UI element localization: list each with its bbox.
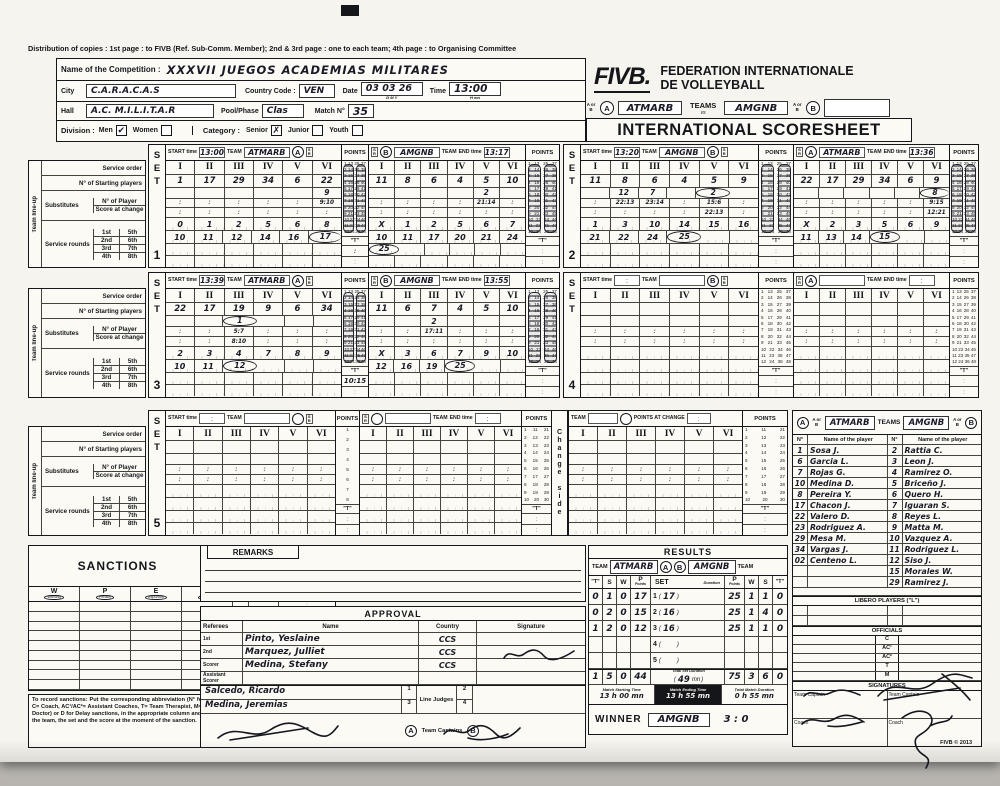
service-round bbox=[225, 385, 254, 396]
service-round bbox=[279, 511, 307, 522]
rotation-header: I bbox=[166, 427, 194, 440]
points-row: 9213345 bbox=[528, 341, 557, 346]
set3-team-b-header: SRBAMGNBTEAMEND time13:55 bbox=[369, 273, 525, 289]
service-round bbox=[670, 244, 700, 255]
points-row: 81828 bbox=[524, 483, 549, 488]
rotation-header: I bbox=[794, 161, 820, 174]
service-round bbox=[581, 385, 611, 396]
service-round bbox=[421, 385, 447, 396]
service-round bbox=[279, 485, 307, 497]
set5-right-header: SRTEAMEND time bbox=[360, 411, 521, 427]
starting-player: 22 bbox=[794, 175, 820, 187]
points-row: 3152739 bbox=[952, 303, 976, 308]
pool-label: Pool/Phase bbox=[221, 108, 259, 115]
starting-player bbox=[685, 441, 714, 453]
service-round bbox=[194, 498, 222, 510]
service-round bbox=[611, 347, 641, 359]
service-round bbox=[166, 385, 195, 396]
service-round bbox=[194, 511, 222, 522]
roster-row: 10Medina D.5Briceño J. bbox=[793, 478, 981, 489]
service-round bbox=[254, 244, 283, 255]
match-duration-value: 0 h 55 mn bbox=[735, 693, 774, 701]
service-round bbox=[820, 385, 846, 396]
starting-player: 29 bbox=[225, 175, 254, 187]
score-at-change bbox=[166, 465, 194, 474]
points-row: 4162840 bbox=[528, 181, 557, 186]
approval-row: 1st Pinto, Yeslaine CCS bbox=[201, 633, 585, 646]
service-round bbox=[369, 373, 395, 384]
substitute bbox=[254, 188, 283, 198]
score-at-change bbox=[656, 465, 685, 474]
points-row: 9213345 bbox=[952, 212, 976, 217]
sr-marker: SR bbox=[306, 147, 313, 157]
approval-title: APPROVAL bbox=[201, 607, 585, 621]
score-at-change bbox=[670, 337, 700, 346]
substitute bbox=[870, 188, 895, 198]
starting-player: 5 bbox=[474, 303, 500, 315]
team-badge: B bbox=[380, 146, 392, 158]
substitute bbox=[166, 188, 195, 198]
starting-player bbox=[569, 441, 598, 453]
fivb-header: FIVB. FEDERATION INTERNATIONALE DE VOLLE… bbox=[586, 58, 980, 142]
service-round: 24 bbox=[639, 231, 668, 243]
captain-a-mark: A bbox=[405, 725, 417, 737]
teams-word: TEAMS bbox=[690, 101, 716, 110]
set1-team-a-grid: START time13:00TEAMATMARBASR IIIIIIIVVVI… bbox=[166, 144, 342, 268]
roster-row: 1Sosa J.2Rattia C. bbox=[793, 445, 981, 456]
rotation-header: III bbox=[627, 427, 656, 440]
score-at-change bbox=[369, 327, 395, 336]
category-youth-label: Youth bbox=[329, 127, 348, 134]
team-badge bbox=[371, 413, 383, 425]
service-round bbox=[495, 511, 521, 522]
round-pair: 2nd6th bbox=[94, 237, 145, 245]
starting-player bbox=[627, 441, 656, 453]
service-round bbox=[627, 485, 656, 497]
service-round bbox=[581, 360, 611, 372]
sr-marker: SR bbox=[371, 276, 378, 286]
scoresheet-title: INTERNATIONAL SCORESHEET bbox=[617, 121, 881, 140]
service-round bbox=[468, 523, 495, 534]
country-header: Country bbox=[419, 621, 477, 632]
service-round bbox=[395, 373, 421, 384]
rotation-header: III bbox=[225, 289, 254, 302]
rotation-header: I bbox=[166, 289, 195, 302]
service-round: 2 bbox=[166, 347, 195, 359]
service-round: 2 bbox=[421, 218, 447, 230]
starting-player: 8 bbox=[611, 175, 641, 187]
substitute bbox=[627, 454, 656, 464]
service-round bbox=[395, 385, 421, 396]
sr-marker: SR bbox=[796, 276, 803, 286]
service-round bbox=[283, 385, 312, 396]
service-round bbox=[474, 373, 500, 384]
score-at-change bbox=[195, 208, 224, 217]
score-at-change bbox=[729, 199, 758, 208]
service-round bbox=[872, 385, 898, 396]
points-row: 4162840 bbox=[344, 309, 366, 314]
team-a-badge: A bbox=[600, 101, 614, 115]
starting-player bbox=[581, 303, 611, 315]
category-junior-label: Junior bbox=[288, 127, 309, 134]
starting-players-label: N° of Starting players bbox=[42, 176, 145, 191]
substitute bbox=[314, 316, 342, 326]
service-round bbox=[729, 360, 758, 372]
starting-player: 6 bbox=[421, 175, 447, 187]
set5-left-points: POINTS 12345678 "T" bbox=[336, 410, 360, 536]
starting-player: 4 bbox=[448, 303, 474, 315]
service-order-label: Service order bbox=[42, 161, 145, 176]
rotation-header: VI bbox=[500, 289, 525, 302]
substitute bbox=[700, 316, 730, 326]
score-at-change bbox=[360, 475, 387, 484]
service-round bbox=[611, 373, 641, 384]
starting-player: 4 bbox=[670, 175, 700, 187]
score-at-change bbox=[421, 208, 447, 217]
service-round bbox=[670, 385, 700, 396]
match-number-value: 35 bbox=[348, 104, 374, 118]
points-row: 31323 bbox=[745, 444, 785, 449]
rotation-header: V bbox=[700, 161, 730, 174]
service-round bbox=[640, 360, 670, 372]
points-row: 11233547 bbox=[761, 354, 791, 359]
service-round bbox=[685, 523, 714, 534]
set1-block: SET1 START time13:00TEAMATMARBASR IIIIII… bbox=[148, 144, 560, 268]
service-round bbox=[414, 511, 441, 522]
service-round: 9 bbox=[313, 347, 341, 359]
substitute bbox=[166, 316, 195, 326]
score-at-change bbox=[369, 208, 395, 217]
points-row: 1132537 bbox=[344, 290, 366, 295]
substitute bbox=[820, 316, 846, 326]
rotation-header: I bbox=[369, 161, 395, 174]
score-at-change bbox=[223, 465, 251, 474]
team-badge: B bbox=[707, 146, 719, 158]
points-row: 12243648 bbox=[761, 230, 791, 235]
score-at-change bbox=[195, 327, 224, 336]
service-round bbox=[569, 523, 598, 534]
team-badge: A bbox=[292, 275, 304, 287]
rotation-header: V bbox=[468, 427, 495, 440]
score-at-change bbox=[898, 327, 924, 336]
service-round bbox=[898, 256, 924, 267]
substitute bbox=[223, 454, 251, 464]
points-row: 2 bbox=[338, 438, 357, 443]
set1-team-b-points: POINTS 113253721426383152739416284051729… bbox=[526, 144, 560, 268]
score-at-change bbox=[448, 199, 474, 208]
substitute bbox=[794, 188, 819, 198]
points-row: 102030 bbox=[524, 498, 549, 503]
service-round bbox=[714, 485, 742, 497]
end-time: 13:55 bbox=[484, 275, 510, 286]
points-row: 3152739 bbox=[952, 174, 976, 179]
starting-player: 34 bbox=[313, 303, 341, 315]
service-round: 4 bbox=[225, 347, 254, 359]
score-at-change bbox=[283, 208, 312, 217]
points-row: 7193143 bbox=[952, 199, 976, 204]
service-round bbox=[360, 498, 387, 510]
time-value: 13:00 bbox=[449, 82, 501, 96]
service-round bbox=[627, 511, 656, 522]
substitute bbox=[794, 316, 820, 326]
points-row: 2142638 bbox=[952, 296, 976, 301]
team-a-name: ATMARB bbox=[618, 101, 682, 115]
service-round bbox=[254, 373, 283, 384]
remarks-panel: REMARKS bbox=[200, 545, 586, 602]
change-side-column: Change side bbox=[552, 410, 568, 536]
roster-captain-a-signature bbox=[800, 686, 864, 700]
service-round: 14 bbox=[844, 231, 869, 243]
service-round bbox=[872, 256, 898, 267]
service-round bbox=[369, 256, 395, 267]
service-round bbox=[251, 498, 279, 510]
rotation-header: V bbox=[474, 289, 500, 302]
rotation-header: III bbox=[846, 289, 872, 302]
substitute bbox=[846, 316, 872, 326]
score-at-change: 22:13 bbox=[700, 208, 730, 217]
service-round bbox=[313, 256, 341, 267]
score-at-change bbox=[495, 465, 521, 474]
points-row: 6183042 bbox=[761, 322, 791, 327]
score-at-change bbox=[656, 475, 685, 484]
service-round: 0 bbox=[166, 218, 195, 230]
division-women-checkbox bbox=[161, 125, 172, 136]
service-round bbox=[627, 498, 656, 510]
points-row: 71727 bbox=[745, 475, 785, 480]
score-at-change bbox=[820, 327, 846, 336]
score-at-change bbox=[714, 475, 742, 484]
service-round: 6 bbox=[421, 347, 447, 359]
round-pair: 3rd7th bbox=[94, 245, 145, 253]
service-round bbox=[308, 485, 335, 497]
category-youth-checkbox bbox=[352, 125, 363, 136]
score-at-change bbox=[166, 199, 195, 208]
sanction-column-header: WWarning bbox=[29, 587, 80, 601]
service-round bbox=[495, 498, 521, 510]
rotation-header: IV bbox=[872, 161, 898, 174]
service-round: 12 bbox=[369, 360, 394, 372]
score-at-change bbox=[448, 337, 474, 346]
starting-player: 5 bbox=[474, 175, 500, 187]
service-round bbox=[474, 256, 500, 267]
date-value: 03 03 26 bbox=[361, 82, 423, 96]
score-at-change bbox=[223, 475, 251, 484]
points-row: 6183042 bbox=[528, 193, 557, 198]
service-round bbox=[820, 347, 846, 359]
roster-row: 29Mesa M.10Vazquez A. bbox=[793, 533, 981, 544]
roster-badge-a: A bbox=[797, 417, 809, 429]
points-row: 5172941 bbox=[344, 316, 366, 321]
time-label: Time bbox=[430, 88, 446, 95]
service-round bbox=[283, 373, 312, 384]
service-round bbox=[794, 244, 820, 255]
substitute bbox=[441, 454, 468, 464]
service-round bbox=[900, 231, 925, 243]
round-pair: 2nd6th bbox=[94, 504, 145, 512]
service-round bbox=[656, 523, 685, 534]
score-at-change: 15:6 bbox=[700, 199, 730, 208]
rotation-header: V bbox=[283, 289, 312, 302]
score-at-change bbox=[500, 337, 525, 346]
rotation-header: VI bbox=[729, 289, 758, 302]
starting-player: 22 bbox=[166, 303, 195, 315]
service-round bbox=[700, 244, 730, 255]
service-round: 25 bbox=[445, 360, 475, 372]
points-row: 71727 bbox=[524, 475, 549, 480]
roster-team-b: AMGNB bbox=[903, 416, 949, 430]
rotation-header: II bbox=[611, 289, 641, 302]
service-round bbox=[924, 385, 949, 396]
rotation-header: VI bbox=[313, 289, 341, 302]
substitute bbox=[495, 454, 521, 464]
score-at-change bbox=[729, 337, 758, 346]
points-row: 6183042 bbox=[528, 322, 557, 327]
rotation-header: V bbox=[279, 427, 307, 440]
service-round bbox=[656, 511, 685, 522]
rotation-header: III bbox=[640, 289, 670, 302]
score-at-change bbox=[395, 337, 421, 346]
score-at-change bbox=[395, 208, 421, 217]
score-at-change bbox=[898, 208, 924, 217]
roster-row: 8Pereira Y.6Quero H. bbox=[793, 489, 981, 500]
service-round: 20 bbox=[448, 231, 474, 243]
score-at-change bbox=[251, 465, 279, 474]
service-round bbox=[611, 244, 641, 255]
rotation-header: II bbox=[598, 427, 627, 440]
service-round bbox=[820, 373, 846, 384]
score-at-change bbox=[640, 208, 670, 217]
points-row: 5172941 bbox=[952, 316, 976, 321]
points-row: 1132537 bbox=[952, 290, 976, 295]
points-row: 102030 bbox=[745, 498, 785, 503]
points-row: 9213345 bbox=[344, 212, 366, 217]
set2-team-a-header: SRAATMARBTEAMEND time13:36 bbox=[794, 145, 949, 161]
service-round bbox=[254, 385, 283, 396]
substitute bbox=[421, 188, 447, 198]
substitute bbox=[598, 454, 627, 464]
roster-row: 23Rodriguez A.9Matta M. bbox=[793, 522, 981, 533]
points-row: 7193143 bbox=[761, 328, 791, 333]
service-round bbox=[729, 244, 758, 255]
service-round: 3 bbox=[846, 218, 872, 230]
score-at-change bbox=[500, 199, 525, 208]
set3-label: SET3 bbox=[148, 272, 166, 398]
service-round: 8 bbox=[283, 347, 312, 359]
service-round bbox=[441, 523, 468, 534]
points-row: 11233547 bbox=[761, 224, 791, 229]
service-round bbox=[794, 385, 820, 396]
service-round bbox=[700, 373, 730, 384]
score-at-change bbox=[194, 465, 222, 474]
points-row: 31323 bbox=[524, 444, 549, 449]
service-round bbox=[251, 523, 279, 534]
service-round bbox=[501, 244, 525, 255]
starting-player bbox=[308, 441, 335, 453]
service-round bbox=[846, 347, 872, 359]
service-round bbox=[598, 523, 627, 534]
points-row: 8203244 bbox=[344, 335, 366, 340]
points-row: 21222 bbox=[524, 436, 549, 441]
service-round: 13 bbox=[819, 231, 844, 243]
service-round bbox=[195, 385, 224, 396]
score-at-change bbox=[581, 199, 611, 208]
team-name bbox=[819, 275, 865, 286]
service-round bbox=[820, 244, 846, 255]
service-round bbox=[441, 485, 468, 497]
points-row: 3152739 bbox=[528, 174, 557, 179]
team-b-badge: B bbox=[806, 101, 820, 115]
service-round bbox=[820, 360, 846, 372]
service-round bbox=[569, 498, 598, 510]
starting-player: 9 bbox=[254, 303, 283, 315]
points-row: 7 bbox=[338, 488, 357, 493]
starting-player bbox=[714, 441, 742, 453]
service-round bbox=[670, 347, 700, 359]
round-pair: 4th8th bbox=[94, 253, 145, 260]
score-at-change bbox=[670, 199, 700, 208]
substitute bbox=[500, 316, 525, 326]
score-at-change: 9:10 bbox=[313, 199, 341, 208]
score-at-change bbox=[611, 327, 641, 336]
points-row: 8203244 bbox=[528, 335, 557, 340]
score-at-change bbox=[448, 208, 474, 217]
rotation-header: V bbox=[283, 161, 312, 174]
set5-left-header: START timeTEAMSR bbox=[166, 411, 335, 427]
service-round bbox=[581, 347, 611, 359]
score-at-change bbox=[598, 465, 627, 474]
service-round bbox=[898, 360, 924, 372]
set4-team-b-header: START timeTEAMBSR bbox=[581, 273, 758, 289]
starting-player: 6 bbox=[898, 175, 924, 187]
service-round bbox=[468, 498, 495, 510]
starting-player bbox=[223, 441, 251, 453]
points-row: 11233547 bbox=[344, 224, 366, 229]
round-pair: 3rd7th bbox=[94, 512, 145, 520]
rotation-header: VI bbox=[729, 161, 758, 174]
points-row: 12243648 bbox=[344, 360, 366, 365]
points-row: 8203244 bbox=[528, 206, 557, 211]
sanction-column-header: EExpulsion bbox=[131, 587, 182, 601]
roster-team-a: ATMARB bbox=[825, 416, 875, 430]
libero-row bbox=[793, 616, 981, 626]
substitute bbox=[195, 316, 224, 326]
service-round: 16 bbox=[394, 360, 419, 372]
set4-team-b-points: POINTS 113253721426383152739416284051729… bbox=[759, 272, 794, 398]
points-row: 6183042 bbox=[952, 193, 976, 198]
score-at-change bbox=[474, 208, 500, 217]
substitute bbox=[670, 316, 700, 326]
division-women-label: Women bbox=[133, 127, 158, 134]
roster-row: 17Chacon J.7Iguaran S. bbox=[793, 500, 981, 511]
points-row: 8203244 bbox=[952, 206, 976, 211]
score-at-change bbox=[627, 475, 656, 484]
points-row: 11233547 bbox=[952, 224, 976, 229]
score-at-change bbox=[714, 465, 742, 474]
service-round bbox=[414, 498, 441, 510]
score-at-change bbox=[421, 337, 447, 346]
points-row: 3152739 bbox=[528, 303, 557, 308]
name-header: Name bbox=[243, 621, 419, 632]
service-round: 5 bbox=[448, 218, 474, 230]
starting-player: 17 bbox=[195, 303, 224, 315]
service-round: 6 bbox=[898, 218, 924, 230]
date-label: Date bbox=[343, 88, 358, 95]
service-round bbox=[166, 373, 195, 384]
service-round bbox=[685, 511, 714, 522]
service-round: 7 bbox=[448, 347, 474, 359]
starting-player: 8 bbox=[395, 175, 421, 187]
service-round: 9 bbox=[924, 218, 949, 230]
